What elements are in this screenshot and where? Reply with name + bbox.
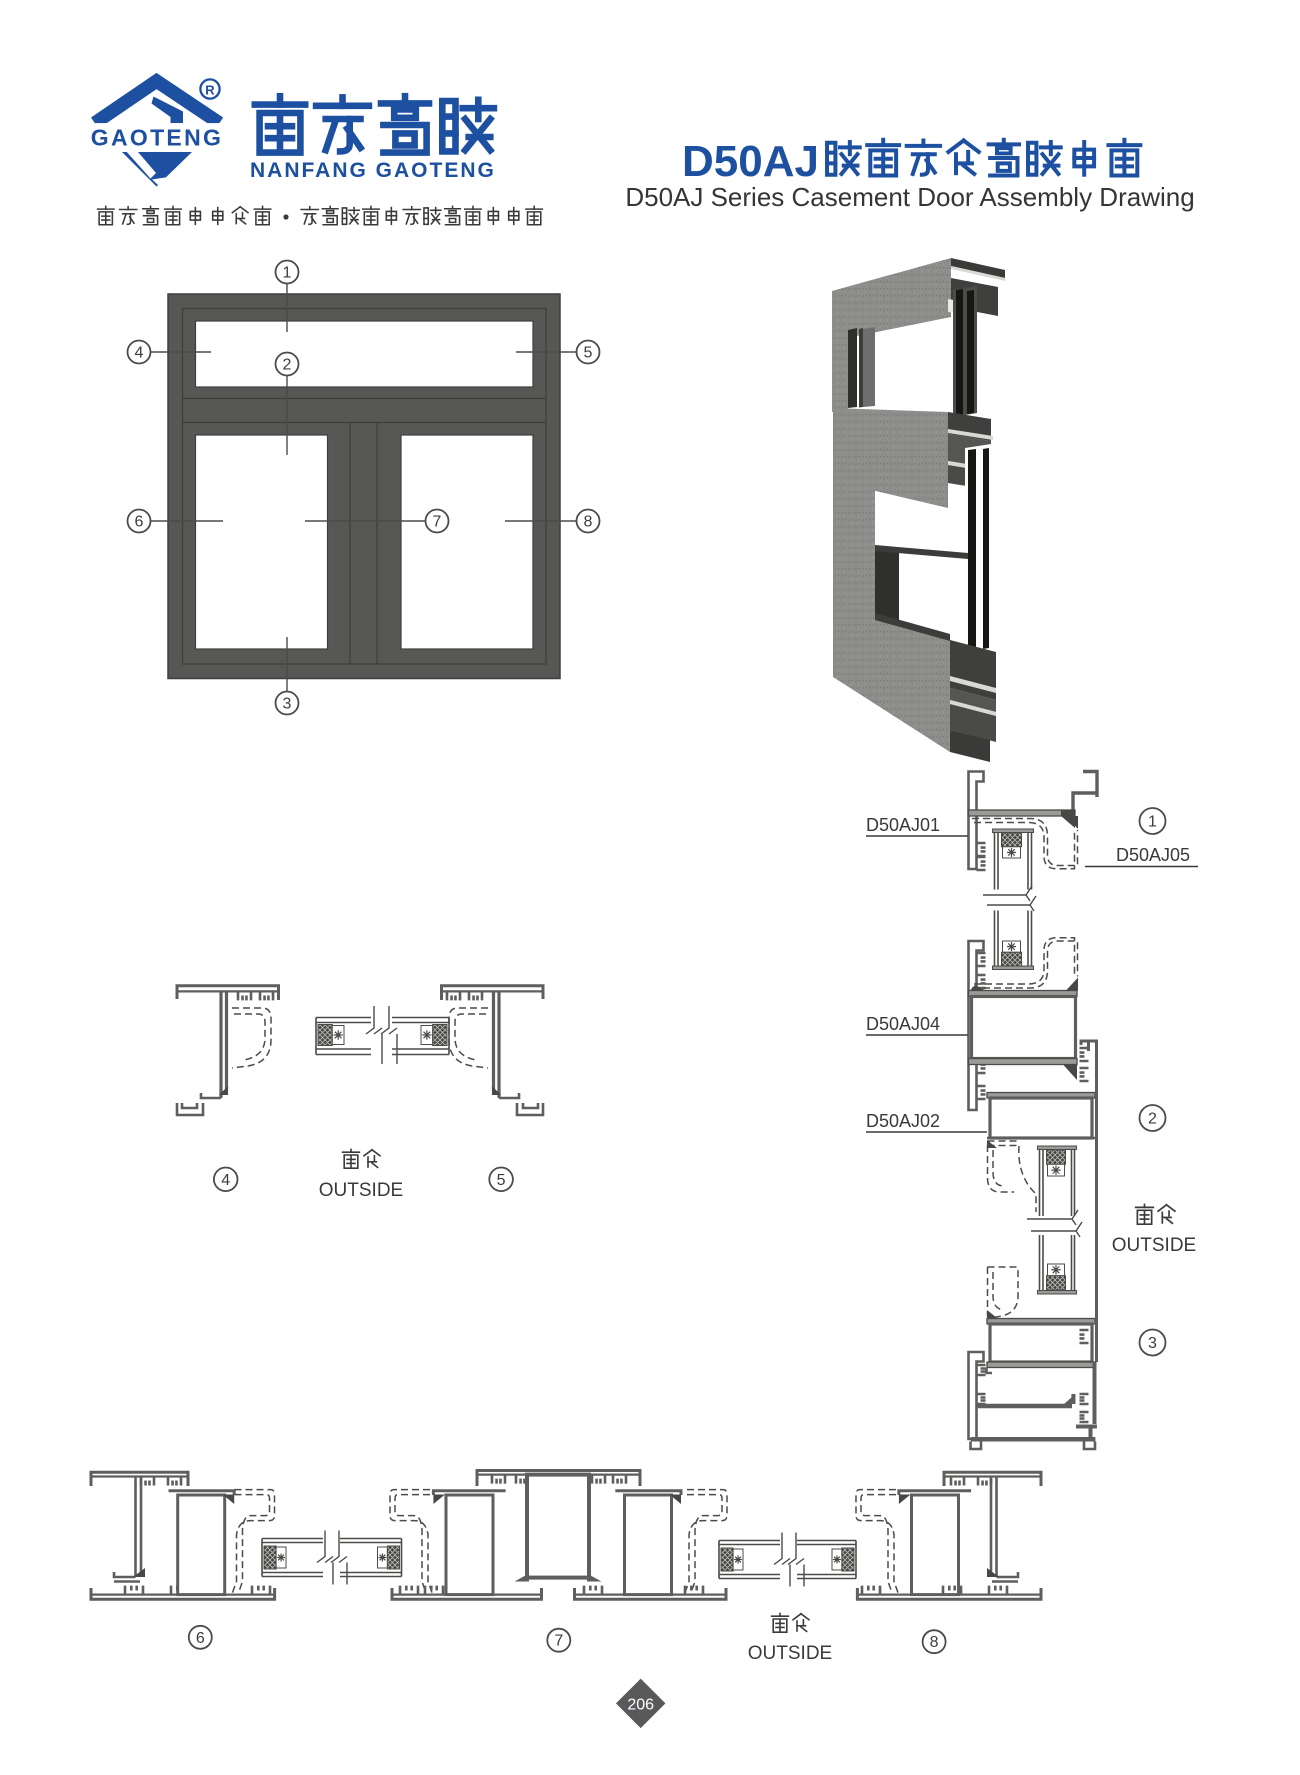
svg-text:GAOTENG: GAOTENG <box>91 125 223 151</box>
svg-text:8: 8 <box>930 1634 939 1651</box>
svg-text:D50AJ02: D50AJ02 <box>866 1111 940 1131</box>
svg-text:7: 7 <box>433 514 442 531</box>
svg-text:3: 3 <box>1148 1335 1157 1352</box>
svg-text:OUTSIDE: OUTSIDE <box>1112 1235 1196 1256</box>
svg-text:8: 8 <box>584 514 593 531</box>
svg-text:2: 2 <box>1148 1111 1157 1128</box>
svg-text:D50AJ: D50AJ <box>682 137 819 186</box>
svg-text:6: 6 <box>196 1630 205 1647</box>
svg-text:5: 5 <box>497 1172 506 1189</box>
svg-text:D50AJ04: D50AJ04 <box>866 1014 940 1034</box>
svg-text:7: 7 <box>554 1633 563 1650</box>
svg-text:D50AJ05: D50AJ05 <box>1116 845 1190 865</box>
svg-text:NANFANG GAOTENG: NANFANG GAOTENG <box>250 159 496 182</box>
svg-text:D50AJ01: D50AJ01 <box>866 815 940 835</box>
svg-text:4: 4 <box>221 1172 230 1189</box>
svg-text:D50AJ Series Casement Door Ass: D50AJ Series Casement Door Assembly Draw… <box>625 182 1194 212</box>
svg-text:206: 206 <box>627 1697 654 1714</box>
svg-text:1: 1 <box>283 265 292 282</box>
svg-text:R: R <box>205 83 215 98</box>
svg-text:1: 1 <box>1148 814 1157 831</box>
svg-text:6: 6 <box>135 514 144 531</box>
svg-text:3: 3 <box>283 696 292 713</box>
svg-text:2: 2 <box>283 357 292 374</box>
svg-text:OUTSIDE: OUTSIDE <box>748 1643 832 1664</box>
svg-text:OUTSIDE: OUTSIDE <box>319 1180 403 1201</box>
svg-text:4: 4 <box>135 345 144 362</box>
svg-text:5: 5 <box>584 345 593 362</box>
